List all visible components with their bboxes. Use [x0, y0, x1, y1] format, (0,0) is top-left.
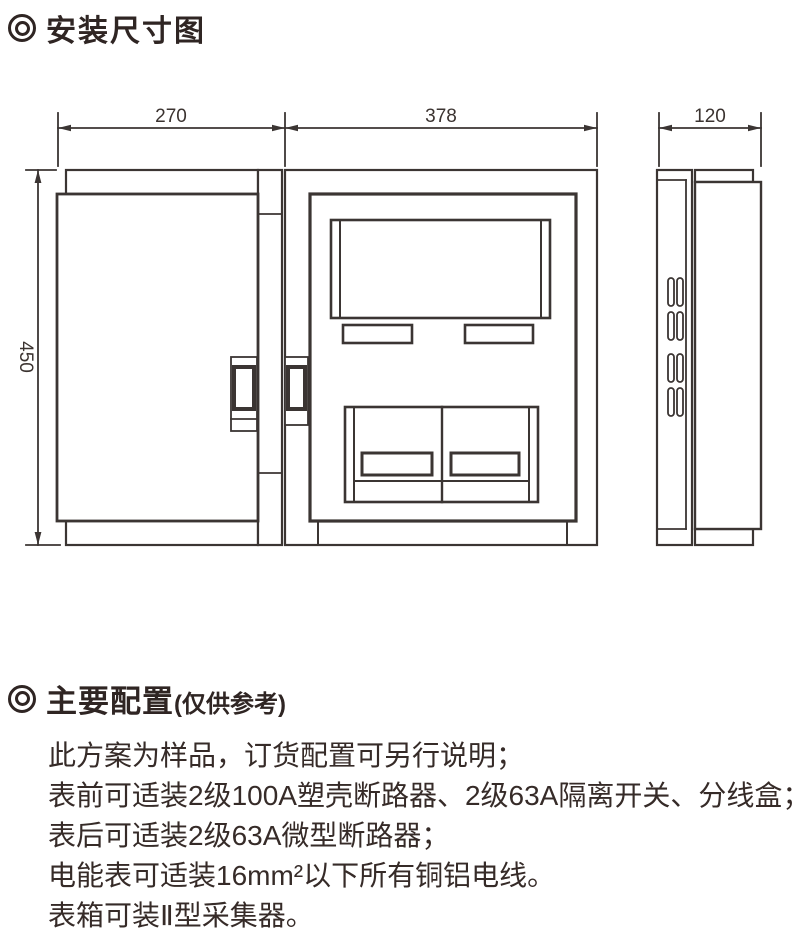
door-body — [57, 194, 258, 521]
box-latch — [285, 357, 308, 425]
door-latch — [231, 357, 257, 431]
side-box-body — [695, 182, 761, 529]
dim-label-depth: 120 — [694, 106, 726, 127]
config-note-line: 此方案为样品，订货配置可另行说明； — [48, 736, 798, 776]
side-bottom-lip — [695, 529, 753, 545]
config-section-title: 主要配置(仅供参考) — [8, 676, 286, 721]
cutout-right — [465, 325, 533, 343]
dim-label-door-width: 270 — [155, 106, 187, 127]
door-bottom-flange — [66, 521, 258, 545]
config-title-text: 主要配置 — [46, 684, 174, 719]
side-top-lip — [695, 170, 753, 182]
bullseye-icon — [8, 685, 36, 713]
door-top-flange — [66, 170, 258, 194]
main-box-view — [285, 170, 597, 545]
dim-label-box-width: 378 — [425, 106, 457, 127]
door-hinge-strip — [258, 170, 282, 545]
config-notes: 此方案为样品，订货配置可另行说明； 表前可适装2级100A塑壳断路器、2级63A… — [48, 736, 798, 936]
side-view — [657, 170, 761, 545]
config-note-line: 表后可适装2级63A微型断路器； — [48, 816, 798, 856]
config-title-suffix: (仅供参考) — [174, 691, 286, 718]
breaker-bay — [345, 407, 538, 502]
door-panel-view — [57, 170, 282, 545]
config-note-line: 表箱可装Ⅱ型采集器。 — [48, 896, 798, 936]
bay-slot-right — [451, 453, 519, 475]
meter-window — [331, 220, 550, 318]
page: 安装尺寸图 — [0, 0, 800, 942]
dim-label-height: 450 — [15, 341, 36, 373]
config-note-line: 电能表可适装16mm²以下所有铜铝电线。 — [48, 856, 798, 896]
bay-slot-left — [362, 453, 432, 475]
config-note-line: 表前可适装2级100A塑壳断路器、2级63A隔离开关、分线盒； — [48, 776, 798, 816]
cutout-left — [343, 325, 412, 343]
